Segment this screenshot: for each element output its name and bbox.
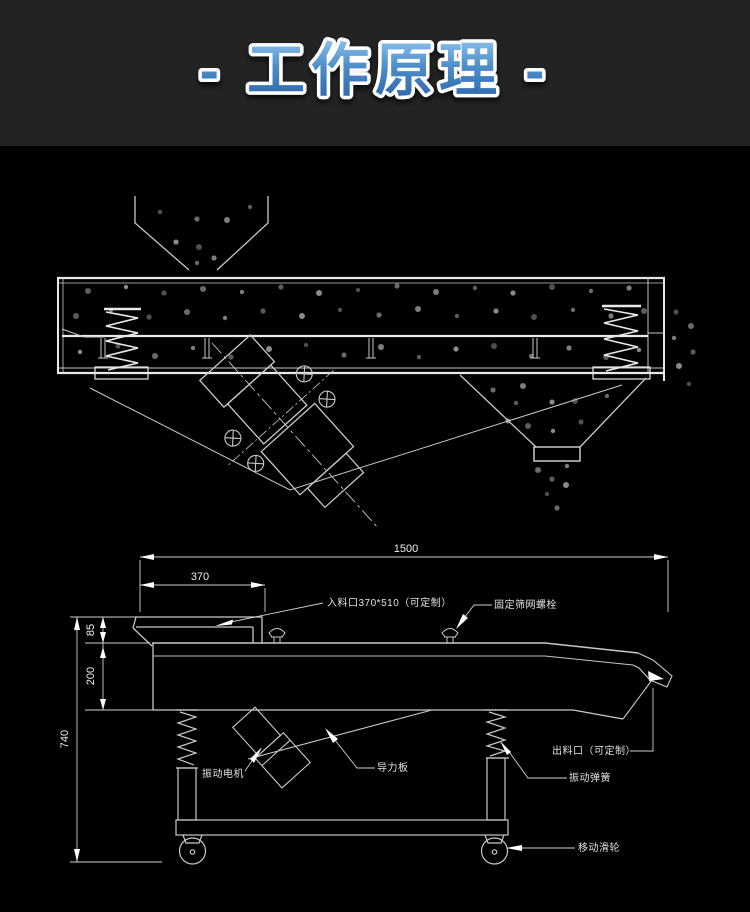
label-spring: 振动弹簧	[569, 771, 611, 784]
top-schematic	[57, 196, 696, 538]
discharge-spout	[633, 653, 672, 687]
right-caster	[482, 835, 508, 864]
machine-body	[133, 617, 672, 719]
label-outlet: 出料口（可定制）	[552, 744, 636, 757]
mount-struts	[90, 385, 622, 490]
left-caster	[180, 835, 206, 864]
body-bottom	[153, 710, 623, 719]
vibrating-screen-diagram: 1500 370 85 200	[0, 146, 750, 912]
callouts: 入料口370*510（可定制） 固定筛网螺栓 出料口（可定制） 振动电机 导力板…	[202, 596, 653, 854]
dimension-740: 740	[59, 617, 162, 862]
label-guide-plate: 导力板	[377, 761, 409, 774]
label-caster: 移动滑轮	[578, 841, 620, 854]
dim-inlet-height: 85	[85, 624, 97, 636]
dimension-370: 370	[140, 571, 265, 612]
dim-total-length: 1500	[394, 543, 418, 555]
dimension-200: 200	[85, 643, 153, 710]
flow-arrow	[648, 671, 664, 681]
dim-inlet-length: 370	[191, 571, 209, 583]
page: - 工作原理 -	[0, 0, 750, 912]
label-inlet: 入料口370*510（可定制）	[327, 596, 452, 609]
dim-total-height: 740	[59, 730, 71, 748]
dimension-85: 85	[70, 617, 150, 643]
dim-body-height: 200	[85, 667, 97, 685]
guide-plate-line	[248, 710, 432, 759]
label-mesh-bolt: 固定筛网螺栓	[494, 598, 557, 611]
page-title: - 工作原理 -	[200, 38, 551, 103]
header-band: - 工作原理 -	[0, 0, 750, 146]
mesh-bolt-1	[269, 629, 285, 644]
dimensioned-elevation: 1500 370 85 200	[59, 543, 672, 864]
discharge-funnel	[460, 375, 646, 461]
mesh-bolt-2	[442, 629, 458, 644]
label-motor: 振动电机	[202, 767, 244, 780]
motor-axis-centerline	[212, 343, 379, 529]
left-support-spring	[95, 309, 148, 379]
chute-edge	[623, 680, 652, 719]
screen-box	[57, 277, 665, 381]
mesh-hangers	[98, 338, 540, 358]
deck-top	[152, 643, 638, 653]
left-coil-spring	[176, 710, 198, 768]
title-art: - 工作原理 -	[0, 0, 750, 146]
feed-tray	[133, 617, 262, 643]
